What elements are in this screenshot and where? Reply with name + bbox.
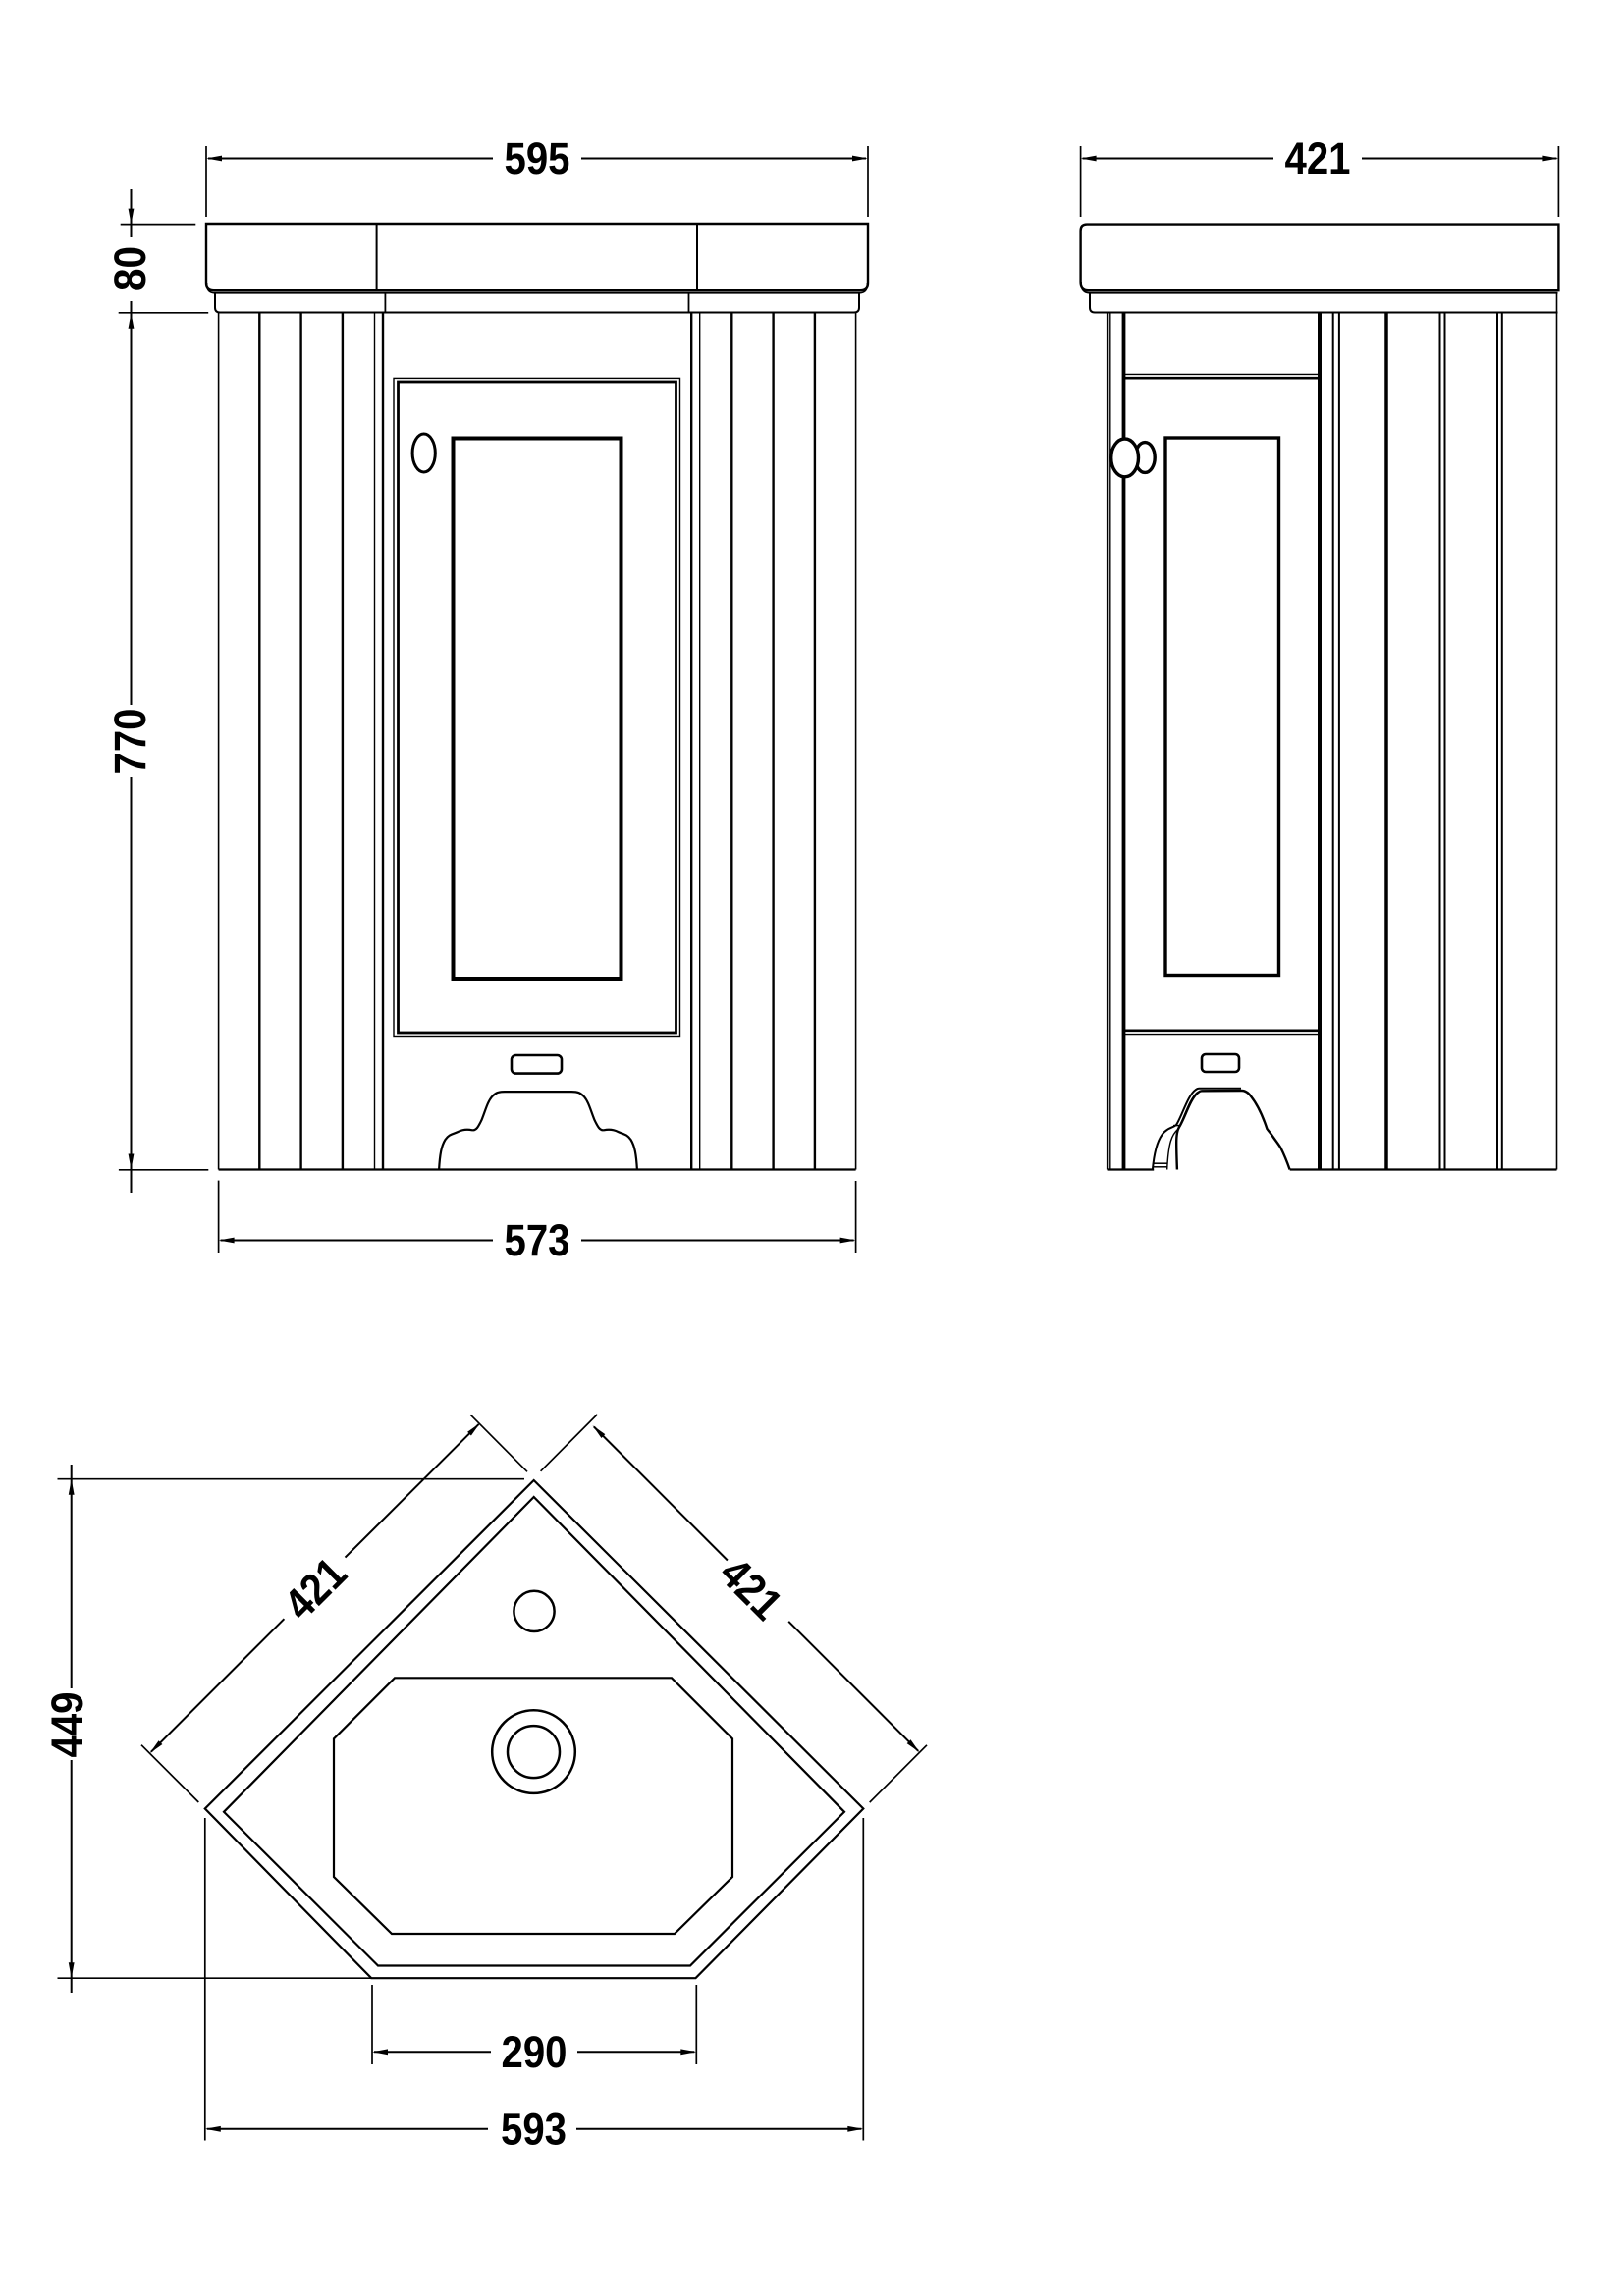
svg-text:770: 770 xyxy=(105,709,155,774)
svg-text:421: 421 xyxy=(1285,133,1351,184)
svg-text:290: 290 xyxy=(502,2027,568,2077)
svg-text:573: 573 xyxy=(505,1215,570,1265)
svg-text:593: 593 xyxy=(501,2105,567,2155)
svg-text:449: 449 xyxy=(42,1692,92,1758)
svg-text:80: 80 xyxy=(105,246,155,291)
svg-text:595: 595 xyxy=(505,133,570,184)
